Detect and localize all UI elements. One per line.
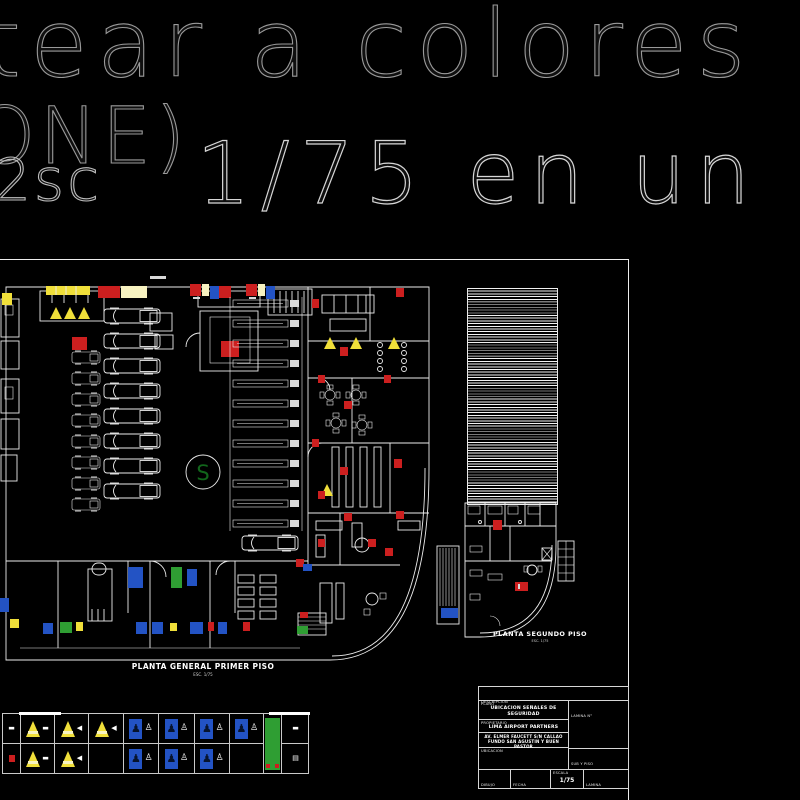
- ubicacion-label: UBICACION: [481, 749, 566, 753]
- blue-sign-icon: ♟: [200, 749, 213, 769]
- legend-cell: ♟♙: [195, 714, 229, 744]
- cone-sign-icon: [26, 751, 40, 767]
- legend-cell: ▬: [21, 744, 54, 773]
- arrow-glyph-icon: ◀: [111, 725, 116, 732]
- lamina-label: LAMINA: [586, 783, 601, 787]
- blue-sign-icon: ♟: [129, 749, 142, 769]
- ramp-circle: S: [186, 455, 220, 489]
- dash-glyph-icon: ▬: [8, 725, 15, 732]
- second-floor-scale: ESC. 1/75: [470, 639, 610, 643]
- plano-value: UBICACION SEÑALES DE SEGURIDAD: [481, 706, 566, 717]
- first-floor-scale: ESC. 1/75: [118, 672, 288, 677]
- dash-glyph-icon: ▬: [42, 725, 49, 732]
- title-block: DESCRIPCION PLANO UBICACION SEÑALES DE S…: [478, 686, 629, 789]
- building2-stair: [437, 546, 459, 624]
- dash-glyph-icon: ▬: [292, 725, 299, 732]
- legend-cell: [230, 744, 263, 773]
- roof-hatch-panel: [467, 288, 558, 505]
- legend-cell: ♟♙: [195, 744, 229, 773]
- safety-symbols-legend: ▬▬▬◀◀◀♟♙♟♙♟♙♟♙♟♙♟♙♟♙▬▤: [2, 713, 309, 774]
- blue-sign-icon: ♟: [165, 749, 178, 769]
- parking-stalls: [230, 297, 302, 531]
- propietario-value: LIMA AIRPORT PARTNERS: [481, 725, 566, 731]
- legend-cell: ◀: [55, 744, 88, 773]
- legend-cell: ▤: [282, 744, 309, 773]
- legend-column: ♟♙: [230, 714, 264, 773]
- second-floor-title: PLANTA SEGUNDO PISO: [470, 630, 610, 638]
- overlay-text-2sc: 2sc: [0, 146, 102, 214]
- green-exit-bar-icon: [265, 718, 280, 770]
- signage-top: [190, 284, 275, 299]
- overlay-text-scale: 1/75 en un: [196, 124, 760, 224]
- blue-sign-icon: ♟: [165, 719, 178, 739]
- arrow-glyph-icon: ◀: [77, 725, 82, 732]
- legend-column: ♟♙♟♙: [195, 714, 230, 773]
- person-glyph-icon: ♙: [144, 724, 152, 733]
- cone-sign-icon: [95, 721, 109, 737]
- blue-sign-icon: ♟: [235, 719, 248, 739]
- legend-column: [264, 714, 282, 773]
- legend-column: ◀◀: [55, 714, 89, 773]
- lamina-n-label: LAMINA N°: [571, 714, 592, 718]
- building-outline: [6, 276, 429, 660]
- first-floor-plan[interactable]: S: [0, 275, 432, 665]
- legend-column: ◀: [89, 714, 124, 773]
- legend-cell: ▬: [21, 714, 54, 744]
- person-glyph-icon: ♙: [180, 754, 188, 763]
- legend-cell: ♟♙: [159, 744, 194, 773]
- legend-cell: ♟♙: [230, 714, 263, 744]
- person-glyph-icon: ♙: [144, 754, 152, 763]
- legend-column: ▬▬: [21, 714, 55, 773]
- left-edge-rooms: [1, 299, 19, 481]
- right-wing: [308, 287, 429, 623]
- sector-value: SUB Y PISO: [571, 762, 593, 766]
- cone-sign-icon: [61, 721, 75, 737]
- legend-cell: ▬: [282, 714, 309, 744]
- legend-cell: ◀: [55, 714, 88, 744]
- dibujo-label: DIBUJO: [481, 783, 495, 787]
- person-glyph-icon: ♙: [180, 724, 188, 733]
- fecha-label: FECHA: [513, 783, 526, 787]
- legend-cell: ▬: [3, 714, 20, 744]
- escala-label: ESCALA: [553, 771, 581, 775]
- blue-sign-icon: ♟: [129, 719, 142, 739]
- sheet-border-top: [0, 259, 629, 260]
- arrow-glyph-icon: ◀: [77, 755, 82, 762]
- legend-accent-left: [19, 712, 61, 715]
- person-glyph-icon: ♙: [250, 724, 258, 733]
- building2-rooms: [468, 503, 574, 626]
- person-glyph-icon: ♙: [215, 724, 223, 733]
- legend-cell: ♟♙: [159, 714, 194, 744]
- red-marker-icon: [9, 755, 15, 762]
- steps-glyph-icon: ▤: [292, 755, 299, 762]
- dash-glyph-icon: ▬: [42, 755, 49, 762]
- legend-accent-right: [269, 712, 310, 715]
- cad-drawing-canvas[interactable]: tear a colores ONE) 2sc 1/75 en un: [0, 0, 800, 800]
- legend-column: ♟♙♟♙: [159, 714, 195, 773]
- service-block: [40, 286, 147, 350]
- legend-cell: [3, 744, 20, 773]
- parking-cars: [72, 308, 298, 551]
- legend-column: ▬: [3, 714, 21, 773]
- cone-sign-icon: [61, 751, 75, 767]
- entry-rooms: [150, 286, 312, 371]
- svg-text:S: S: [196, 461, 209, 485]
- legend-cell: ◀: [89, 714, 123, 744]
- escala-value: 1/75: [553, 777, 581, 784]
- legend-cell: ♟♙: [124, 744, 158, 773]
- first-floor-title: PLANTA GENERAL PRIMER PISO: [118, 662, 288, 671]
- legend-cell: ♟♙: [124, 714, 158, 744]
- legend-column: ♟♙♟♙: [124, 714, 159, 773]
- overlay-text-line1: tear a colores: [0, 0, 755, 99]
- cone-sign-icon: [26, 721, 40, 737]
- blue-sign-icon: ♟: [200, 719, 213, 739]
- legend-column: ▬▤: [282, 714, 309, 773]
- person-glyph-icon: ♙: [215, 754, 223, 763]
- legend-cell: [89, 744, 123, 773]
